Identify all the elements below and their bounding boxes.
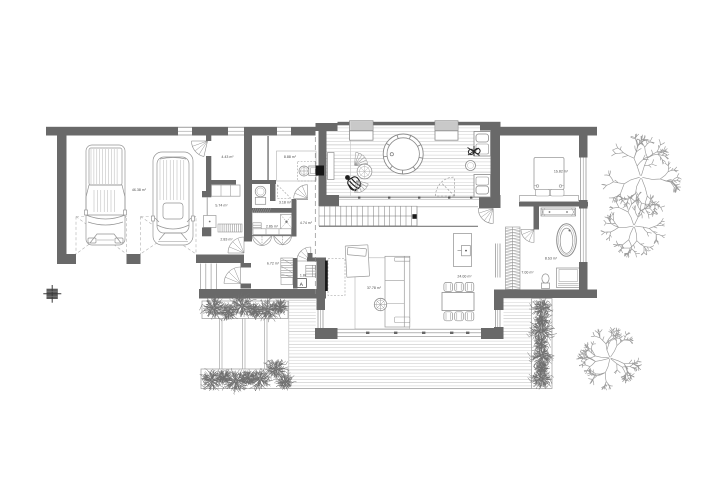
svg-text:37.78 m²: 37.78 m² (367, 286, 382, 290)
svg-text:7.00 m²: 7.00 m² (521, 271, 534, 275)
svg-text:2.85 m²: 2.85 m² (266, 225, 279, 229)
svg-text:8.53 m²: 8.53 m² (545, 257, 558, 261)
svg-text:24.00 m²: 24.00 m² (457, 275, 472, 279)
svg-text:4.43 m²: 4.43 m² (221, 155, 234, 159)
svg-text:5.74 m²: 5.74 m² (215, 204, 228, 208)
svg-text:3.18 m²: 3.18 m² (279, 201, 292, 205)
svg-text:2.83 m²: 2.83 m² (220, 238, 233, 242)
svg-text:15.82 m²: 15.82 m² (554, 170, 569, 174)
svg-text:8.88 m²: 8.88 m² (284, 155, 297, 159)
svg-text:6.72 m²: 6.72 m² (267, 262, 280, 266)
svg-text:46.38 m²: 46.38 m² (132, 188, 147, 192)
svg-text:4.74 m²: 4.74 m² (300, 221, 313, 225)
